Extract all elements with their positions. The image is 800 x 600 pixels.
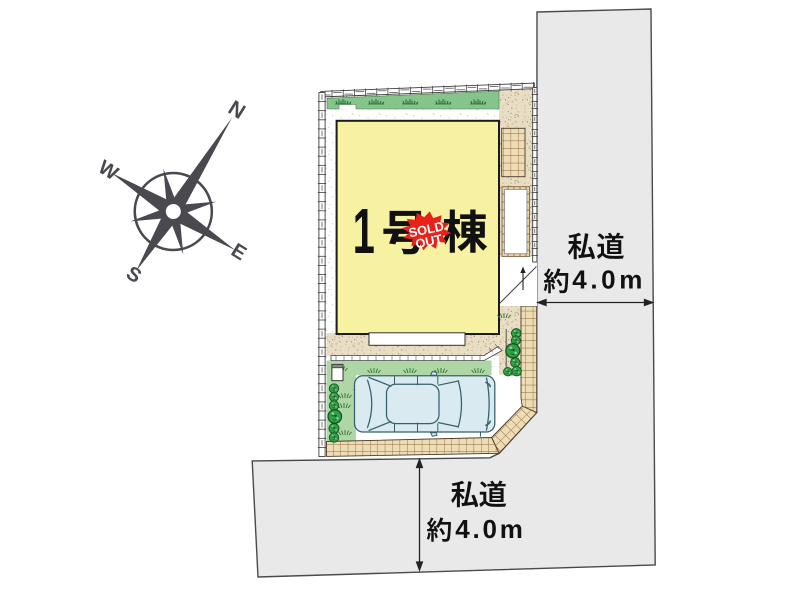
svg-text:4.0m: 4.0m bbox=[455, 514, 525, 544]
svg-text:4.0m: 4.0m bbox=[572, 265, 646, 295]
svg-text:1: 1 bbox=[353, 196, 375, 267]
